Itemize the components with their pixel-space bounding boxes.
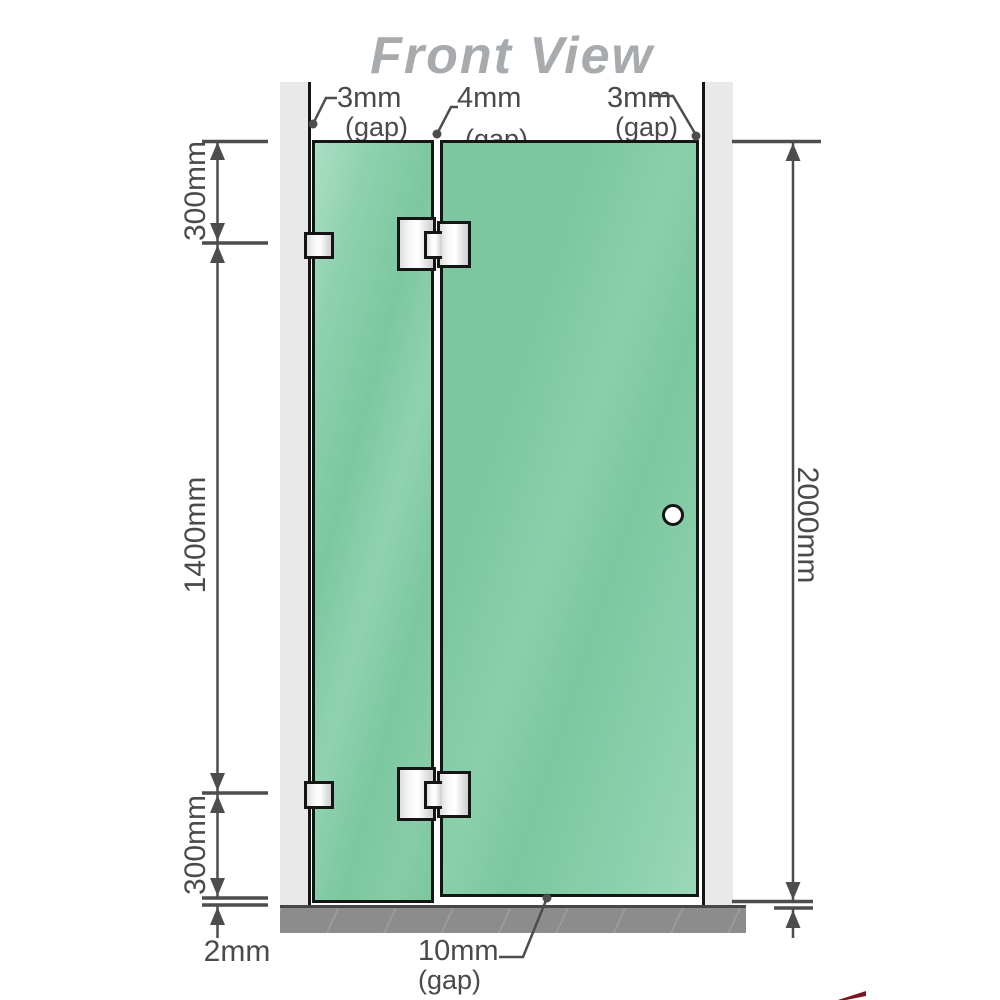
logo-fragment (838, 991, 866, 1000)
leader-gap-bottom (499, 898, 547, 957)
dimension-annotations (0, 0, 1000, 1000)
leader-dots (309, 120, 701, 903)
dim-middle-segment: 1400mm (179, 477, 213, 594)
leader-gap-middle (437, 107, 458, 134)
gap-label-bottom-value: 10mm (418, 937, 499, 966)
leader-gap-left (313, 98, 337, 124)
leader-gap-right (651, 96, 696, 135)
gap-label-bottom-suffix: (gap) (418, 967, 499, 994)
gap-label-bottom: 10mm (gap) (418, 937, 499, 994)
dim-top-segment: 300mm (179, 141, 213, 241)
dim-floor-gap: 2mm (204, 935, 271, 969)
leader-lines (313, 96, 696, 957)
dim-total-height: 2000mm (790, 467, 824, 584)
dim-bottom-segment: 300mm (179, 795, 213, 895)
